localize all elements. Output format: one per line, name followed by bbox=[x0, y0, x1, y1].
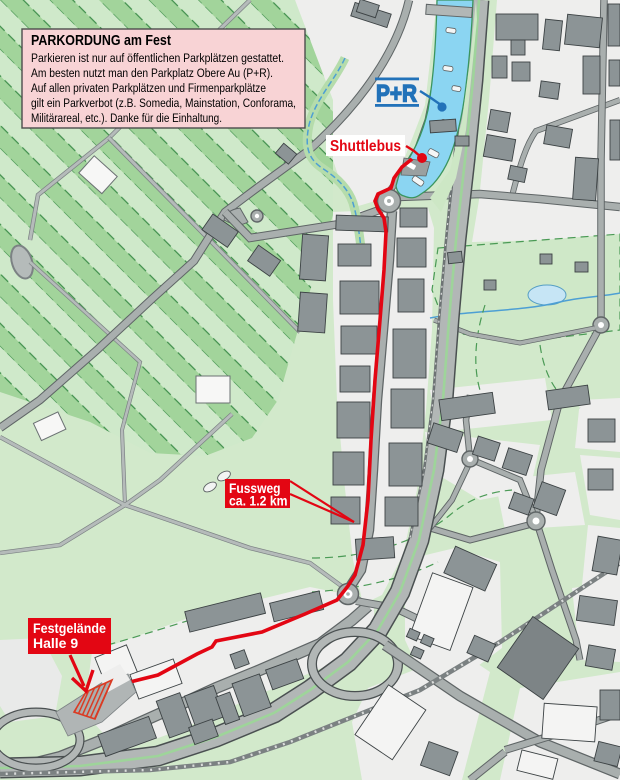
svg-text:P+R: P+R bbox=[376, 81, 417, 108]
svg-text:Halle 9: Halle 9 bbox=[33, 635, 78, 651]
svg-text:ca. 1.2 km: ca. 1.2 km bbox=[229, 494, 288, 509]
svg-text:Festgelände: Festgelände bbox=[33, 620, 106, 636]
svg-text:Am besten nutzt man den Parkpl: Am besten nutzt man den Parkplatz Obere … bbox=[31, 66, 273, 80]
svg-text:Shuttlebus: Shuttlebus bbox=[330, 138, 401, 155]
svg-text:PARKORDUNG am Fest: PARKORDUNG am Fest bbox=[31, 32, 171, 49]
svg-text:Militärareal, etc.). Danke für: Militärareal, etc.). Danke für die Einha… bbox=[31, 111, 222, 125]
svg-text:Auf allen privaten Parkplätzen: Auf allen privaten Parkplätzen und Firme… bbox=[31, 81, 266, 95]
svg-text:gilt ein Parkverbot (z.B. Some: gilt ein Parkverbot (z.B. Somedia, Mains… bbox=[31, 96, 296, 110]
svg-text:Parkieren ist nur auf öffentli: Parkieren ist nur auf öffentlichen Parkp… bbox=[31, 51, 284, 65]
